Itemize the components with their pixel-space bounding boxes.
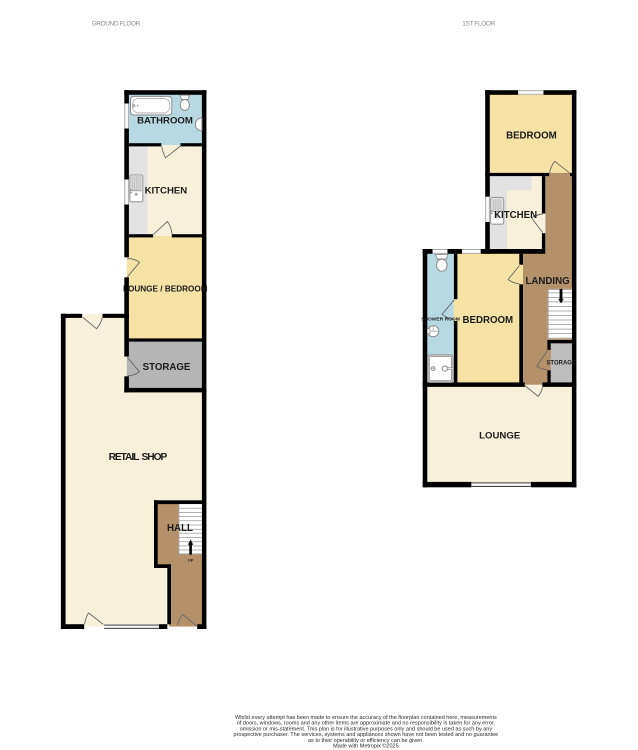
- svg-text:LOUNGE: LOUNGE: [479, 431, 521, 442]
- svg-text:GROUND FLOOR: GROUND FLOOR: [92, 20, 141, 27]
- svg-text:UP: UP: [188, 557, 194, 562]
- svg-text:BEDROOM: BEDROOM: [463, 315, 514, 326]
- svg-text:Made with Metropix ©2025: Made with Metropix ©2025: [333, 743, 399, 750]
- svg-text:SHOWER ROOM: SHOWER ROOM: [421, 316, 460, 322]
- svg-text:RETAIL SHOP: RETAIL SHOP: [109, 452, 168, 463]
- svg-text:HALL: HALL: [167, 523, 193, 534]
- svg-text:LOUNGE / BEDROOM: LOUNGE / BEDROOM: [123, 284, 208, 293]
- svg-text:KITCHEN: KITCHEN: [145, 185, 188, 196]
- svg-text:BEDROOM: BEDROOM: [506, 130, 557, 141]
- svg-text:STORAGE: STORAGE: [546, 360, 576, 366]
- svg-text:LANDING: LANDING: [526, 276, 570, 287]
- svg-text:KITCHEN: KITCHEN: [494, 210, 537, 221]
- svg-text:BATHROOM: BATHROOM: [137, 116, 193, 127]
- svg-text:STORAGE: STORAGE: [143, 362, 191, 373]
- svg-text:1ST FLOOR: 1ST FLOOR: [462, 20, 495, 27]
